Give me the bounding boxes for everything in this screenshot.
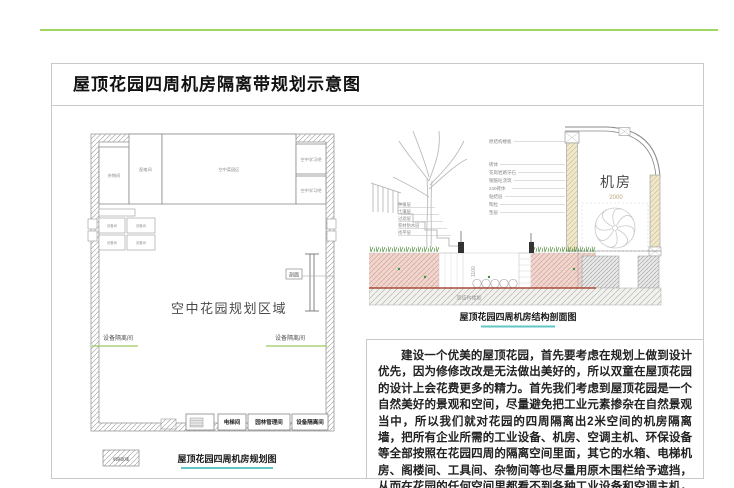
construction-label: 砖体 (489, 161, 498, 168)
layer-label: 过滤层 (398, 215, 412, 222)
section-caption-underline (481, 326, 555, 328)
small-room-label: 设备间 (107, 240, 118, 245)
content-card: 屋顶花园四周机房隔离带规划示意图 杂物间 (51, 63, 704, 479)
construction-label: 240砖体 (489, 185, 506, 192)
section-marker-label: 剖面 (289, 272, 299, 279)
construction-leader-lines (500, 142, 565, 213)
construction-label: 陶粒 (489, 201, 498, 208)
floor-plan-drawing: 杂物间 配电间 空中菜园区 空中学习吧 空中学习吧 设备间 设备间 设备间 设备… (86, 119, 364, 471)
trench-depth-dimension: 1100 (471, 266, 477, 277)
bottom-room-elevator: 电梯间 (224, 418, 241, 426)
machine-room-dimension: 2000 (609, 195, 623, 201)
bottom-room-garden-mgmt: 园林管理间 (255, 418, 283, 426)
bottom-room-isolation: 设备隔离间 (296, 418, 324, 426)
plan-caption-underline (181, 467, 273, 469)
room-label-storage: 杂物间 (108, 172, 121, 179)
section-drawing: 种植层 土壤层 过滤层 卷材防水层 找平层 原结构楼板 砖体 花岗岩路牙石 钢筋… (369, 119, 703, 336)
room-label-study-top: 空中学习吧 (301, 156, 323, 163)
top-accent-line (40, 29, 718, 31)
structural-slab (369, 288, 661, 305)
construction-label: 粘结层 (489, 193, 503, 200)
garden-ground (369, 231, 596, 288)
stairs (371, 183, 461, 252)
description-text: 建设一个优美的屋顶花园，首先要考虑在规划上做到设计优先，因为修修改改是无法做出美… (367, 340, 703, 488)
room-label-study-bottom: 空中学习吧 (301, 187, 323, 194)
plan-top-rooms (99, 134, 326, 204)
small-room-label: 设备间 (136, 240, 147, 245)
description-box: 建设一个优美的屋顶花园，首先要考虑在规划上做到设计优先，因为修修改改是无法做出美… (366, 339, 704, 479)
plan-center-label: 空中花园规划区域 (171, 301, 287, 316)
construction-label: 原结构楼板 (489, 138, 512, 145)
fan-icon (593, 206, 637, 250)
page: 屋顶花园四周机房隔离带规划示意图 杂物间 (0, 0, 734, 488)
construction-label: 钢筋砼浇筑 (489, 177, 512, 184)
machine-room-label: 机房 (600, 174, 632, 190)
plan-caption: 屋顶花园四周机房规划图 (177, 453, 276, 464)
drainage-pipes (473, 279, 517, 287)
page-title: 屋顶花园四周机房隔离带规划示意图 (52, 64, 703, 106)
support-piers (578, 251, 659, 288)
machine-room-walls (565, 127, 661, 256)
room-label-power: 配电间 (139, 166, 152, 173)
small-room-label: 设备间 (107, 223, 118, 228)
section-caption: 屋顶花园四周机房结构剖面图 (459, 311, 576, 322)
legend-label: 机房区域 (113, 456, 129, 462)
isolation-right-label: 设备隔离间 (275, 334, 305, 342)
slab-label: 原结构楼板 (456, 295, 481, 302)
room-label-garden-plot: 空中菜园区 (219, 166, 240, 173)
layer-label: 土壤层 (398, 208, 412, 215)
layer-label: 卷材防水层 (398, 222, 420, 229)
layer-label: 种植层 (398, 201, 412, 208)
construction-label: 垫层 (489, 209, 498, 216)
isolation-left-label: 设备隔离间 (103, 334, 133, 342)
construction-label: 花岗岩路牙石 (489, 169, 516, 176)
small-room-label: 设备间 (136, 223, 147, 228)
layer-label: 找平层 (398, 229, 412, 236)
